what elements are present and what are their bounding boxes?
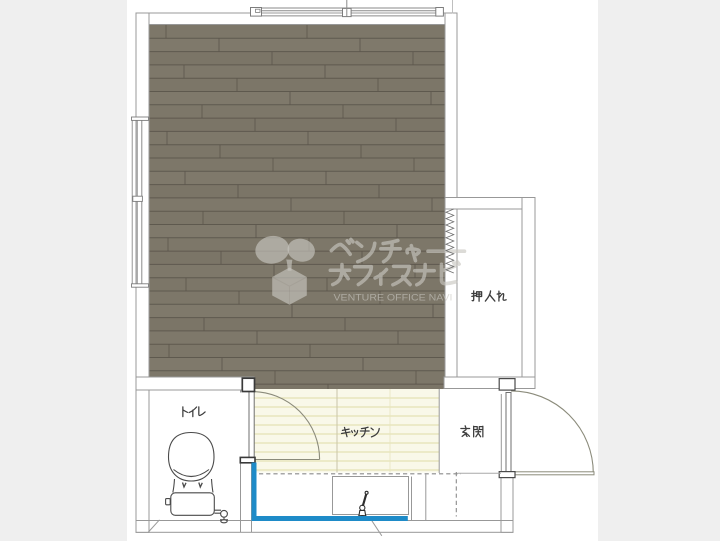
svg-text:VENTURE OFFICE NAVI: VENTURE OFFICE NAVI xyxy=(334,293,453,303)
